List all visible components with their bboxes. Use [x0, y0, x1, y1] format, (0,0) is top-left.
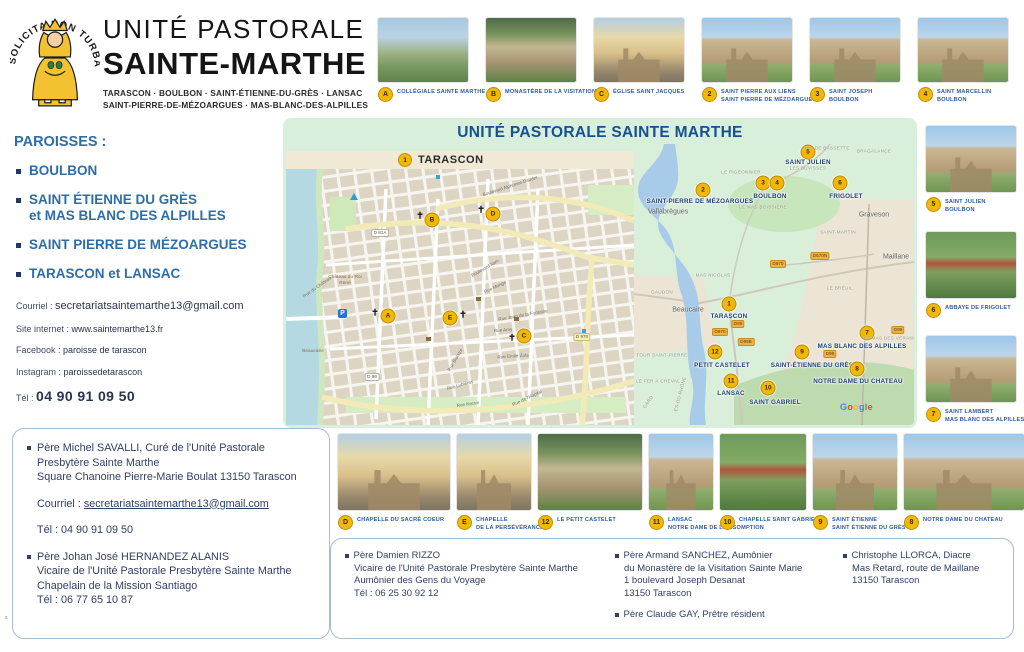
bullet-icon: [27, 555, 31, 559]
priest-savalli: Père Michel SAVALLI, Curé de l'Unité Pas…: [37, 441, 265, 456]
road-ref-chip: D 81A: [371, 229, 389, 237]
place-label: MAS NICOLAS: [696, 273, 731, 278]
photo-card: 10Chapelle Saint Gabriel: [720, 434, 806, 532]
bullet-icon: [16, 243, 21, 248]
photo-badge: E: [457, 515, 472, 530]
road-ref-chip: D99: [731, 320, 744, 328]
contact-line: 13150 Tarascon: [852, 575, 1008, 588]
parish-poster-page: SOLICITA NON TURBATUR UNITÉ PASTORALE SA…: [0, 0, 1024, 652]
street-label: Rue de l'Hôpital: [511, 389, 542, 407]
map-marker-label: MAS BLANC DES ALPILLES: [818, 343, 907, 350]
courriel-line: Courriel :secretariatsaintemarthe13@gmai…: [37, 497, 315, 512]
place-label: SAINT-MARTIN: [820, 230, 856, 235]
bullet-icon: [16, 198, 21, 203]
church-cross-icon: ✝: [508, 333, 516, 344]
contact-line: Vicaire de l'Unité Pastorale Presbytère …: [354, 563, 601, 576]
church-photo: [486, 18, 576, 82]
map-title: UNITÉ PASTORALE SAINTE MARTHE: [283, 124, 917, 142]
photo-label: Notre Dame du Chateau: [923, 515, 1003, 525]
chapelain-line: Chapelain de la Mission Santiago: [37, 579, 315, 594]
street-label: Boulevard Alphonse Daudet: [482, 175, 538, 197]
photo-badge: 9: [813, 515, 828, 530]
bullet-icon: [16, 169, 21, 174]
church-cross-icon: ✝: [459, 310, 467, 321]
photo-card: CÉglise Saint Jacques: [594, 18, 684, 104]
photo-label: Saint Marcellinboulbon: [937, 87, 991, 104]
bullet-icon: [615, 554, 619, 558]
street-label: Rue Blanqui: [447, 348, 464, 372]
photo-card: ACollégiale Sainte Marthe: [378, 18, 468, 104]
address-line: Square Chanoine Pierre-Marie Boulat 1315…: [37, 470, 315, 485]
bullet-icon: [345, 554, 349, 558]
contact-line: Christophe LLORCA, Diacre: [843, 550, 1008, 563]
paroisse-item: BOULBON: [14, 163, 282, 179]
photo-card: 4Saint Marcellinboulbon: [918, 18, 1008, 104]
photo-caption: EChapellede la Persévérance: [457, 515, 531, 532]
photo-label: Le Petit Castelet: [557, 515, 616, 525]
map-marker-1: 1: [722, 297, 737, 312]
church-cross-icon: ✝: [371, 308, 379, 319]
church-photo: [926, 232, 1016, 298]
street-label: Rue Neuve: [456, 400, 479, 408]
photo-badge: C: [594, 87, 609, 102]
contact-row: Tél : 04 90 91 09 50: [16, 388, 282, 404]
photo-badge: 3: [810, 87, 825, 102]
photo-card: 2Saint Pierre aux LiensSaint Pierre de M…: [702, 18, 792, 104]
contact-line: Mas Retard, route de Maillane: [852, 563, 1008, 576]
place-label: Château du Roi René: [324, 275, 366, 286]
map-marker-10: 10: [761, 381, 776, 396]
place-label: LE FER À CHEVAL: [636, 379, 680, 384]
photo-label: Saint Josephboulbon: [829, 87, 872, 104]
phone-line: Tél : 06 77 65 10 87: [37, 593, 315, 608]
photo-label: Chapelle du Sacré Coeur: [357, 515, 444, 525]
paroisses-list: BOULBONSAINT ÉTIENNE DU GRÈSet MAS BLANC…: [14, 163, 282, 282]
photo-badge: 10: [720, 515, 735, 530]
priest-name-line: Père Michel SAVALLI, Curé de l'Unité Pas…: [27, 441, 315, 456]
priest-name-line: Père Johan José HERNANDEZ ALANIS: [27, 550, 315, 565]
road-ref-chip: D99: [823, 350, 836, 358]
road-ref-chip: D970: [712, 328, 728, 336]
phone-line: Tél : 04 90 91 09 50: [37, 523, 315, 538]
church-photo: [918, 18, 1008, 82]
photo-caption: 11LansacNotre Dame de l'Assomption: [649, 515, 713, 532]
contact-label: Instagram :: [16, 367, 64, 377]
map-marker-label: SAINT-ÉTIENNE DU GRÈS: [771, 362, 854, 369]
email-link[interactable]: secretariatsaintemarthe13@gmail.com: [84, 498, 269, 510]
photo-card: 7Saint LambertMas Blanc des Alpilles: [926, 336, 1016, 424]
contact-line: du Monastère de la Visitation Sainte Mar…: [624, 563, 845, 576]
contact-line: 1 boulevard Joseph Desanat: [624, 575, 845, 588]
photo-badge: 12: [538, 515, 553, 530]
photo-caption: 12Le Petit Castelet: [538, 515, 642, 530]
map-marker-E: E: [443, 311, 458, 326]
vicaire-line: Vicaire de l'Unité Pastorale Presbytère …: [37, 564, 315, 579]
google-logo: Google: [840, 402, 873, 412]
photo-badge: D: [338, 515, 353, 530]
street-label: Rue Emile Zola: [497, 352, 529, 359]
contact-label: Site internet :: [16, 324, 72, 334]
tarascon-band: 1 TARASCON: [286, 151, 634, 169]
photo-label: Chapelle Saint Gabriel: [739, 515, 819, 525]
map-marker-label: LANSAC: [717, 390, 744, 397]
photo-caption: 7Saint LambertMas Blanc des Alpilles: [926, 407, 1016, 424]
church-photo: [457, 434, 531, 510]
photo-badge: 8: [904, 515, 919, 530]
place-label: MAS DE BASSETTE: [802, 146, 849, 151]
contact-line: Père Damien RIZZO: [345, 550, 601, 563]
map-marker-D: D: [486, 207, 501, 222]
map-marker-8: 8: [850, 362, 865, 377]
contact-col-rizzo: Père Damien RIZZOVicaire de l'Unité Past…: [345, 550, 601, 600]
contact-line: Tél : 06 25 30 92 12: [354, 588, 601, 601]
contact-value: secretariatsaintemarthe13@gmail.com: [55, 300, 243, 312]
map-marker-label: SAINT GABRIEL: [749, 399, 801, 406]
photo-badge: 4: [918, 87, 933, 102]
bullet-icon: [843, 554, 847, 558]
map-marker-label: TARASCON: [711, 313, 748, 320]
map-marker-6: 6: [833, 176, 848, 191]
photo-card: 6Abbaye de Frigolet: [926, 232, 1016, 318]
photo-label: Chapellede la Persévérance: [476, 515, 544, 532]
photo-caption: 9Saint ÉtienneSaint Étienne du Grès: [813, 515, 897, 532]
church-cross-icon: ✝: [416, 211, 424, 222]
contact-line: Père Claude GAY, Prêtre résident: [615, 609, 845, 622]
photo-badge: 11: [649, 515, 664, 530]
place-label: Beaucaire: [292, 349, 334, 355]
map-marker-C: C: [517, 329, 532, 344]
photo-caption: 8Notre Dame du Chateau: [904, 515, 1024, 530]
place-label: BRAGALANCE: [857, 149, 891, 154]
contact-value: www.saintemarthe13.fr: [72, 324, 164, 334]
road-ref-chip: D99: [891, 326, 904, 334]
subtitle-line1: TARASCON · BOULBON · SAINT-ÉTIENNE-DU-GR…: [103, 88, 383, 100]
contact-label: Facebook :: [16, 345, 63, 355]
map-marker-B: B: [425, 213, 440, 228]
header-title-block: UNITÉ PASTORALE SAINTE-MARTHE TARASCON ·…: [103, 14, 383, 111]
contact-row: Facebook : paroisse de tarascon: [16, 345, 282, 355]
road-ref-chip: D99B: [738, 338, 755, 346]
photo-badge: 5: [926, 197, 941, 212]
contact-value: paroissedetarascon: [64, 367, 143, 377]
church-photo: [720, 434, 806, 510]
photo-card: 3Saint Josephboulbon: [810, 18, 900, 104]
contact-info-list: Courriel : secretariatsaintemarthe13@gma…: [16, 300, 282, 416]
church-cross-icon: ✝: [477, 205, 485, 216]
photo-label: Monastère de la Visitation: [505, 87, 596, 97]
town-label: Beaucaire: [672, 307, 704, 314]
header-subtitle: TARASCON · BOULBON · SAINT-ÉTIENNE-DU-GR…: [103, 88, 383, 111]
map-marker-4: 4: [770, 176, 785, 191]
priest-hernandez: Père Johan José HERNANDEZ ALANIS: [37, 550, 229, 565]
photo-caption: 2Saint Pierre aux LiensSaint Pierre de M…: [702, 87, 792, 104]
top-photo-row: ACollégiale Sainte MartheBMonastère de l…: [378, 18, 1008, 104]
contact-line: Aumônier des Gens du Voyage: [354, 575, 601, 588]
courriel-label: Courriel :: [37, 498, 81, 510]
paroisses-section: PAROISSES : BOULBONSAINT ÉTIENNE DU GRÈS…: [14, 134, 282, 282]
street-label: Rue Monge: [483, 280, 507, 295]
paroisse-item: SAINT ÉTIENNE DU GRÈSet MAS BLANC DES AL…: [14, 192, 282, 224]
photo-caption: 3Saint Josephboulbon: [810, 87, 900, 104]
photo-caption: DChapelle du Sacré Coeur: [338, 515, 450, 530]
photo-label: Abbaye de Frigolet: [945, 303, 1011, 313]
map-marker-11: 11: [724, 374, 739, 389]
map-marker-3: 3: [756, 176, 771, 191]
photo-card: 9Saint ÉtienneSaint Étienne du Grès: [813, 434, 897, 532]
contact-label: Tél :: [16, 393, 36, 403]
photo-card: 5Saint Julienboulbon: [926, 126, 1016, 214]
place-label: LE MAS DES VÉRANS: [864, 336, 914, 341]
photo-badge: 6: [926, 303, 941, 318]
contact-row: Instagram : paroissedetarascon: [16, 367, 282, 377]
contact-line: Père Armand SANCHEZ, Aumônier: [615, 550, 845, 563]
clergy-contact-box: Père Damien RIZZOVicaire de l'Unité Past…: [330, 538, 1014, 639]
church-photo: [810, 18, 900, 82]
church-photo: [904, 434, 1024, 510]
photo-label: Saint Julienboulbon: [945, 197, 986, 214]
tarascon-city-map: ✝B✝D✝A✝E✝CBoulevard Alphonse DaudetBoule…: [286, 169, 634, 425]
contact-line: 13150 Tarascon: [624, 588, 845, 601]
photo-card: DChapelle du Sacré Coeur: [338, 434, 450, 532]
street-label: Rue Jean de la Fontaine: [498, 308, 548, 322]
cure-contact-box: Père Michel SAVALLI, Curé de l'Unité Pas…: [12, 428, 330, 639]
church-photo: [594, 18, 684, 82]
map-marker-label: FRIGOLET: [829, 193, 862, 200]
contact-label: Courriel :: [16, 301, 55, 311]
contact-row: Site internet : www.saintemarthe13.fr: [16, 324, 282, 334]
bullet-icon: [27, 446, 31, 450]
bottom-photo-row: DChapelle du Sacré CoeurEChapellede la P…: [338, 434, 1024, 532]
bullet-icon: [16, 272, 21, 277]
place-label: LE MAS BOISSIÈRE: [739, 205, 787, 210]
street-label: Boulevard Itam: [470, 258, 499, 278]
road-ref-chip: D 970: [573, 333, 590, 341]
city-map-overlay: ✝B✝D✝A✝E✝CBoulevard Alphonse DaudetBoule…: [286, 169, 634, 425]
church-photo: [538, 434, 642, 510]
photo-label: Église Saint Jacques: [613, 87, 684, 97]
sainte-marthe-crest-logo: SOLICITA NON TURBATUR: [10, 6, 100, 114]
map-marker-label: SAINT-PIERRE DE MÉZOARGUES: [647, 198, 754, 205]
photo-caption: BMonastère de la Visitation: [486, 87, 576, 102]
church-photo: [338, 434, 450, 510]
place-label: TOUR SAINT-PIERRE: [636, 353, 687, 358]
photo-card: 12Le Petit Castelet: [538, 434, 642, 532]
place-label: LE PIGEONNIER: [721, 170, 761, 175]
photo-badge: 7: [926, 407, 941, 422]
contact-value: paroisse de tarascon: [63, 345, 147, 355]
church-photo: [702, 18, 792, 82]
campground-icon: [350, 193, 358, 200]
contact-col-llorca: Christophe LLORCA, DiacreMas Retard, rou…: [843, 550, 1008, 588]
photo-label: Saint LambertMas Blanc des Alpilles: [945, 407, 1024, 424]
road-ref-chip: D970: [770, 260, 786, 268]
photo-badge: A: [378, 87, 393, 102]
road-ref-chip: D570N: [810, 252, 829, 260]
parking-icon: P: [338, 309, 347, 318]
photo-card: 8Notre Dame du Chateau: [904, 434, 1024, 532]
subtitle-line2: SAINT-PIERRE-DE-MÉZOARGUES · MAS-BLANC-D…: [103, 100, 383, 112]
right-photo-column: 5Saint Julienboulbon6Abbaye de Frigolet7…: [926, 126, 1022, 424]
map-marker-12: 12: [708, 345, 723, 360]
region-map: 5SAINT JULIEN2SAINT-PIERRE DE MÉZOARGUES…: [634, 144, 914, 425]
presbytere-line: Presbytère Sainte Marthe: [37, 456, 315, 471]
photo-card: EChapellede la Persévérance: [457, 434, 531, 532]
map-marker-label: NOTRE DAME DU CHATEAU: [813, 378, 902, 385]
church-photo: [649, 434, 713, 510]
map-marker-A: A: [381, 309, 396, 324]
town-label: Maillane: [883, 254, 909, 261]
photo-label: Saint ÉtienneSaint Étienne du Grès: [832, 515, 906, 532]
contact-col-sanchez: Père Armand SANCHEZ, Aumônierdu Monastèr…: [615, 550, 845, 622]
photo-caption: 6Abbaye de Frigolet: [926, 303, 1016, 318]
bullet-icon: [615, 613, 619, 617]
page-mark: s: [5, 615, 8, 621]
title-line2: SAINTE-MARTHE: [103, 46, 383, 82]
photo-card: BMonastère de la Visitation: [486, 18, 576, 104]
place-label: GAUDON: [651, 290, 673, 295]
church-photo: [813, 434, 897, 510]
title-line1: UNITÉ PASTORALE: [103, 14, 383, 45]
contact-value: 04 90 91 09 50: [36, 388, 135, 404]
church-photo: [926, 336, 1016, 402]
place-label: LE BREUIL: [827, 286, 853, 291]
photo-caption: ACollégiale Sainte Marthe: [378, 87, 468, 102]
map-panel: UNITÉ PASTORALE SAINTE MARTHE 1 TARASCON: [283, 118, 917, 428]
place-label: GARD: [642, 395, 654, 410]
paroisses-heading: PAROISSES :: [14, 134, 282, 150]
photo-caption: CÉglise Saint Jacques: [594, 87, 684, 102]
map-marker-2: 2: [696, 183, 711, 198]
photo-caption: 5Saint Julienboulbon: [926, 197, 1016, 214]
contact-row: Courriel : secretariatsaintemarthe13@gma…: [16, 300, 282, 312]
band-badge: 1: [398, 153, 412, 167]
photo-label: Saint Pierre aux LiensSaint Pierre de Mé…: [721, 87, 816, 104]
photo-badge: B: [486, 87, 501, 102]
region-map-overlay: 5SAINT JULIEN2SAINT-PIERRE DE MÉZOARGUES…: [634, 144, 914, 425]
church-photo: [378, 18, 468, 82]
paroisse-item: SAINT PIERRE DE MÉZOARGUES: [14, 237, 282, 253]
map-marker-9: 9: [795, 345, 810, 360]
paroisse-item: TARASCON et LANSAC: [14, 266, 282, 282]
church-photo: [926, 126, 1016, 192]
road-ref-chip: D 99: [365, 373, 380, 381]
photo-label: Collégiale Sainte Marthe: [397, 87, 485, 97]
map-marker-label: BOULBON: [753, 193, 786, 200]
photo-caption: 10Chapelle Saint Gabriel: [720, 515, 806, 530]
band-label: TARASCON: [418, 154, 484, 166]
photo-badge: 2: [702, 87, 717, 102]
place-label: LES BUVISSES: [790, 166, 827, 171]
photo-card: 11LansacNotre Dame de l'Assomption: [649, 434, 713, 532]
town-label: Graveson: [859, 212, 889, 219]
photo-caption: 4Saint Marcellinboulbon: [918, 87, 1008, 104]
map-marker-label: PETIT CASTELET: [694, 362, 750, 369]
town-label: Vallabrègues: [648, 209, 688, 216]
street-label: Rue Lubières: [446, 379, 474, 391]
